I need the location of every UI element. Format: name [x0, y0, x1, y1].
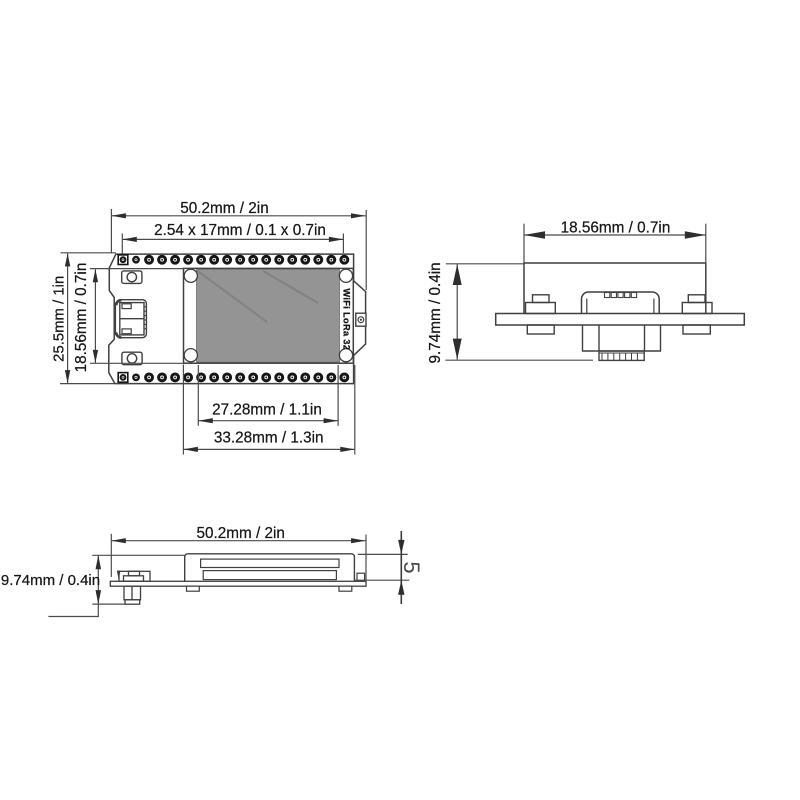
svg-text:18.56mm / 0.7in: 18.56mm / 0.7in: [73, 263, 90, 373]
svg-text:9.74mm / 0.4in: 9.74mm / 0.4in: [427, 262, 444, 363]
svg-text:25.5mm / 1in: 25.5mm / 1in: [52, 276, 68, 362]
svg-text:2.54 x 17mm / 0.1 x 0.7in: 2.54 x 17mm / 0.1 x 0.7in: [154, 222, 326, 239]
svg-text:50.2mm / 2in: 50.2mm / 2in: [180, 200, 268, 217]
svg-text:WiFi LoRa 32: WiFi LoRa 32: [342, 288, 352, 350]
svg-text:5: 5: [399, 561, 424, 573]
svg-text:9.74mm / 0.4in: 9.74mm / 0.4in: [1, 572, 100, 589]
svg-text:18.56mm / 0.7in: 18.56mm / 0.7in: [561, 220, 671, 237]
svg-text:50.2mm / 2in: 50.2mm / 2in: [196, 525, 284, 542]
svg-text:27.28mm / 1.1in: 27.28mm / 1.1in: [212, 402, 322, 419]
svg-text:33.28mm / 1.3in: 33.28mm / 1.3in: [214, 430, 324, 447]
